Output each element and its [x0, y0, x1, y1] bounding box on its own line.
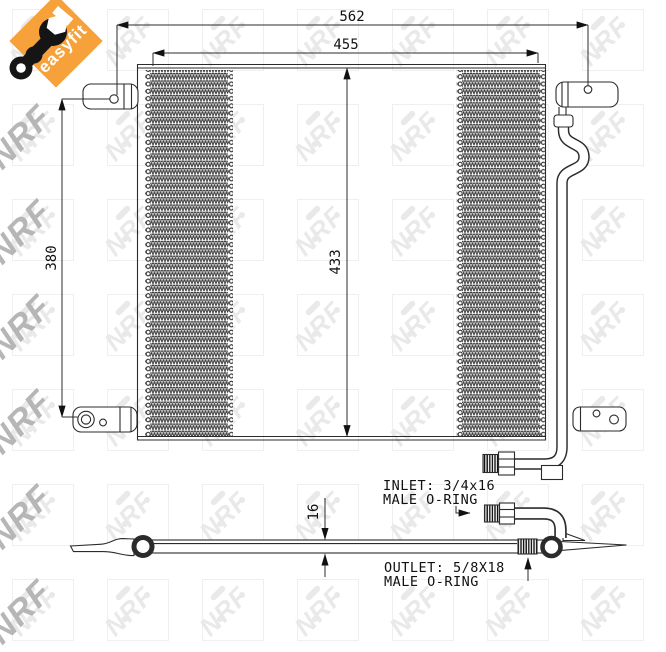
dim-label-16: 16	[306, 504, 322, 521]
pipe-flange	[542, 466, 563, 480]
pipe-cap	[554, 115, 573, 127]
outlet-label-line2: MALE O-RING	[384, 574, 479, 590]
outlet-thread	[485, 505, 500, 522]
fin-pack-right	[462, 70, 540, 436]
bracket-bottom-right	[573, 407, 626, 431]
inlet-label-line2: MALE O-RING	[383, 492, 478, 508]
dim-label-433: 433	[328, 249, 344, 274]
easyfit-badge: easyfit	[0, 0, 120, 120]
inlet-thread	[483, 455, 499, 473]
side-pipe-end	[560, 542, 627, 551]
dim-label-562: 562	[339, 9, 364, 25]
outlet-boss	[543, 538, 561, 556]
dim-label-380: 380	[44, 245, 60, 270]
bracket-bottom-left	[73, 407, 137, 432]
mount-hole	[584, 86, 592, 94]
side-mount-tab	[71, 539, 135, 556]
inlet-fitting	[483, 452, 515, 475]
wrench-icon	[0, 0, 100, 100]
fin-pack-left	[150, 70, 228, 436]
side-view-bar	[146, 540, 560, 553]
bracket-top-right	[556, 82, 618, 107]
outlet-fitting	[485, 503, 515, 524]
outlet-thread-side	[518, 539, 537, 554]
side-view	[71, 503, 627, 556]
dim-label-455: 455	[333, 37, 358, 53]
dim-380	[62, 99, 110, 417]
side-ring	[134, 538, 152, 556]
